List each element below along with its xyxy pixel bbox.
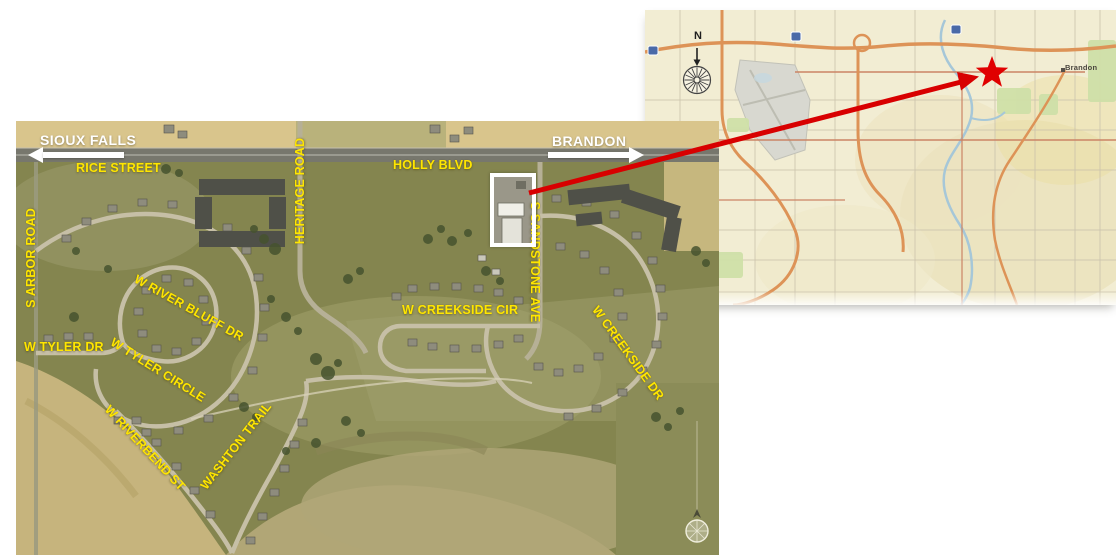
street-label-holly-blvd: HOLLY BLVD [393, 158, 473, 172]
aerial-photo-map: SIOUX FALLS BRANDON RICE STREET HOLLY BL… [16, 121, 719, 555]
street-label-s-arbor-road: S ARBOR ROAD [24, 208, 38, 308]
compass-rose-icon [684, 67, 711, 94]
street-label-heritage-road: HERITAGE ROAD [293, 138, 307, 245]
compass-north-label: N [689, 30, 707, 42]
subject-property-highlight-box [490, 173, 536, 247]
city-label-brandon: Brandon [1065, 63, 1097, 72]
direction-label-sioux-falls: SIOUX FALLS [40, 132, 136, 148]
street-label-w-tyler-dr: W TYLER DR [24, 340, 104, 354]
street-label-w-creekside-cir: W CREEKSIDE CIR [402, 303, 518, 317]
flyer-page: N Brandon [0, 0, 1116, 555]
brandon-arrow-icon [548, 147, 644, 163]
street-label-rice-street: RICE STREET [76, 161, 161, 175]
